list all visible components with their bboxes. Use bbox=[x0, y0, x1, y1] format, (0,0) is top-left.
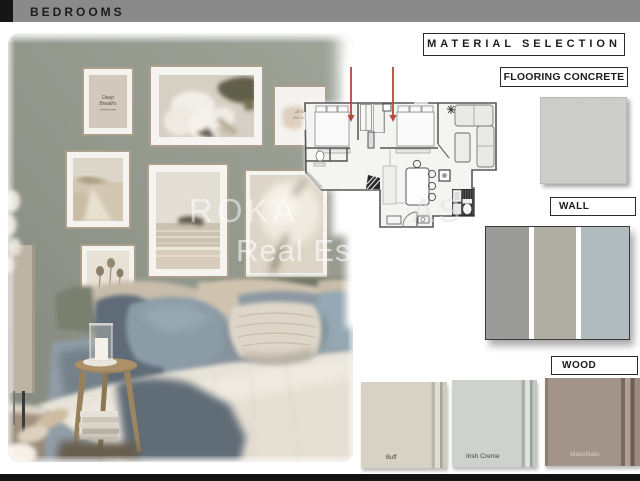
svg-text:Breaths: Breaths bbox=[99, 101, 117, 107]
